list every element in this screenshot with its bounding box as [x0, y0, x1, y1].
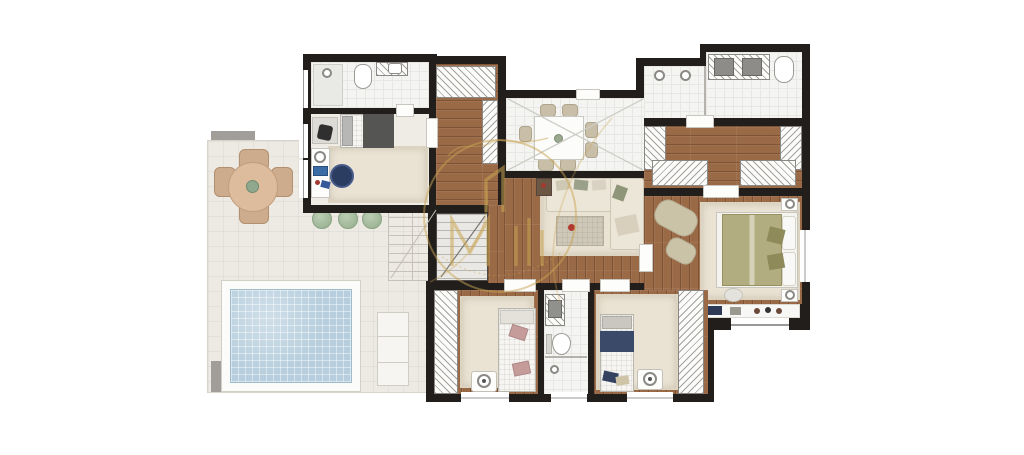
overlay-graphics	[0, 0, 1024, 455]
stair-cut-lines	[391, 210, 485, 278]
watermark-logo	[424, 118, 612, 302]
void-x-marking	[508, 99, 643, 170]
floor-plan	[0, 0, 1024, 455]
